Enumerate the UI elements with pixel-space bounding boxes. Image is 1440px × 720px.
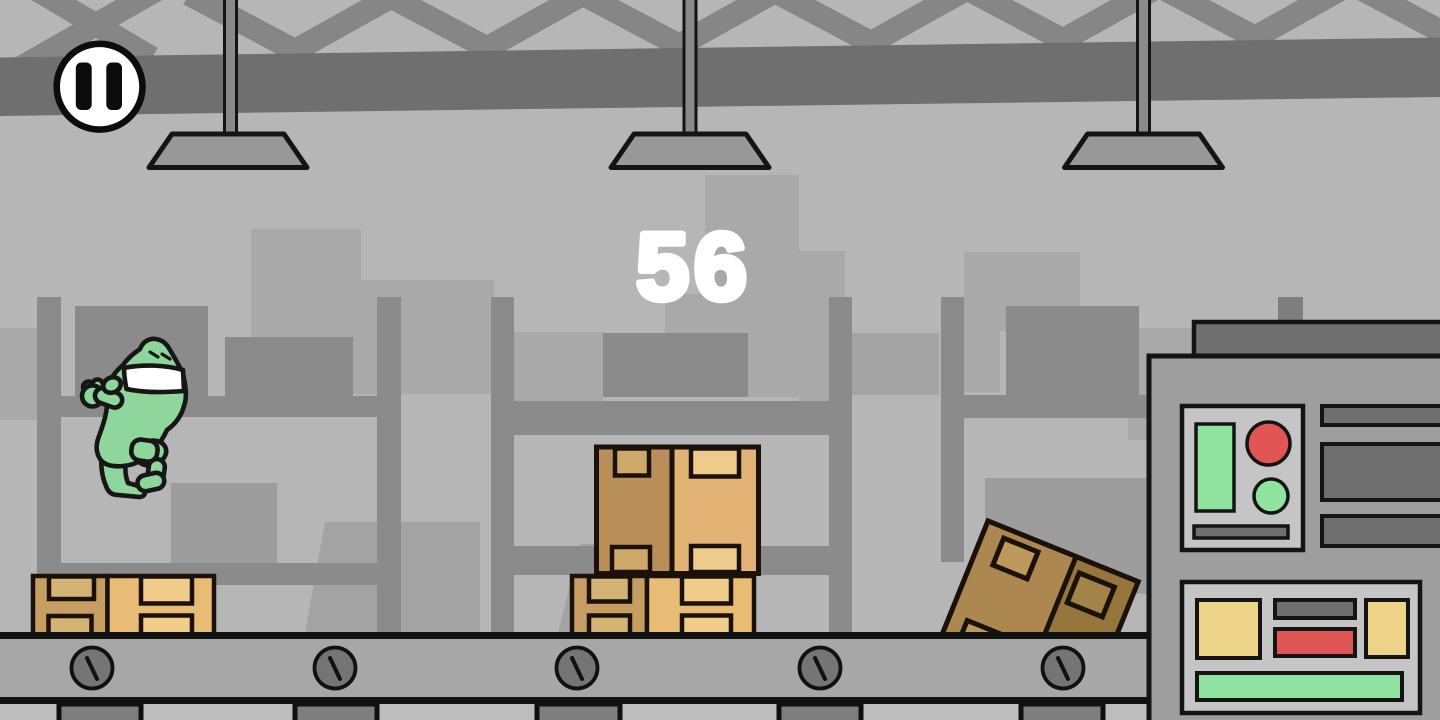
svg-text:56: 56: [636, 214, 752, 320]
